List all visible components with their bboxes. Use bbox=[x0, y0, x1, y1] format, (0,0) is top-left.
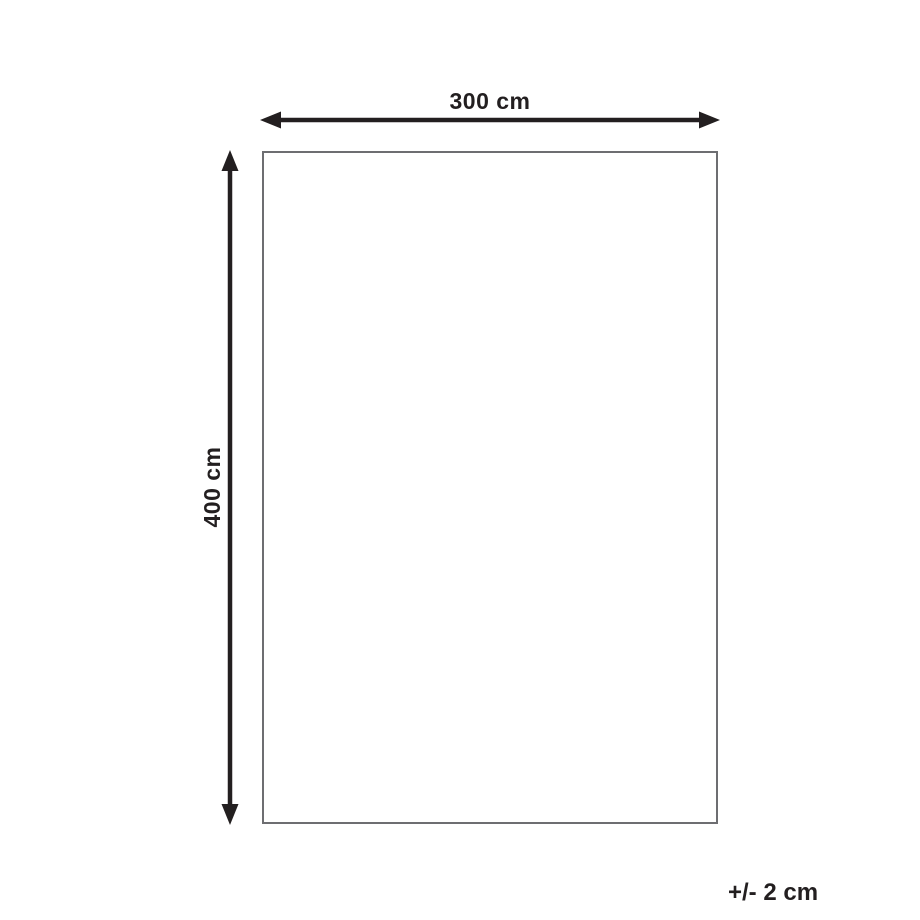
dimension-diagram: 300 cm 400 cm +/- 2 cm bbox=[0, 0, 920, 920]
height-arrowhead-bottom-icon bbox=[222, 804, 239, 825]
width-dimension-label: 300 cm bbox=[262, 88, 718, 115]
product-outline-rectangle bbox=[262, 151, 718, 824]
height-arrowhead-top-icon bbox=[222, 150, 239, 171]
tolerance-label: +/- 2 cm bbox=[728, 879, 818, 907]
height-dimension-label: 400 cm bbox=[199, 427, 223, 547]
